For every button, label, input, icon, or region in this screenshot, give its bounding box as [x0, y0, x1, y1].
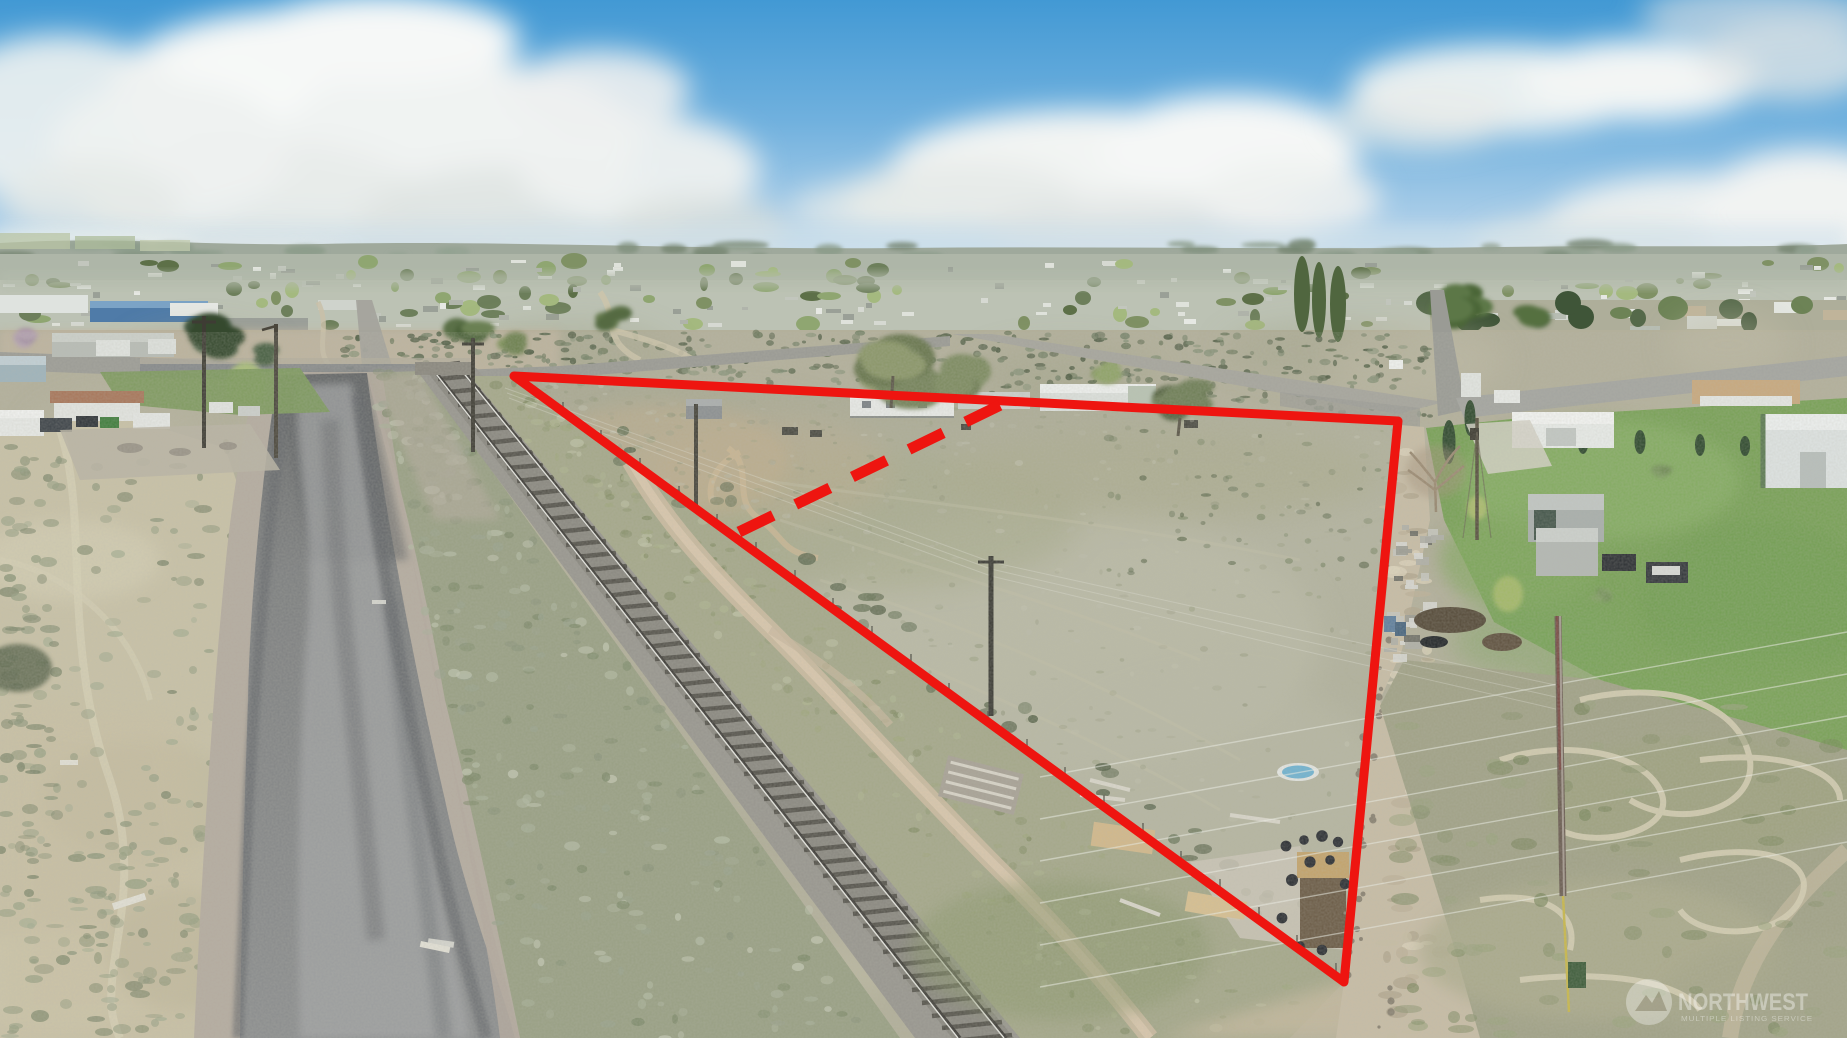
svg-text:MULTIPLE LISTING SERVICE: MULTIPLE LISTING SERVICE	[1681, 1016, 1813, 1023]
svg-text:NORTHWEST: NORTHWEST	[1678, 989, 1808, 1016]
